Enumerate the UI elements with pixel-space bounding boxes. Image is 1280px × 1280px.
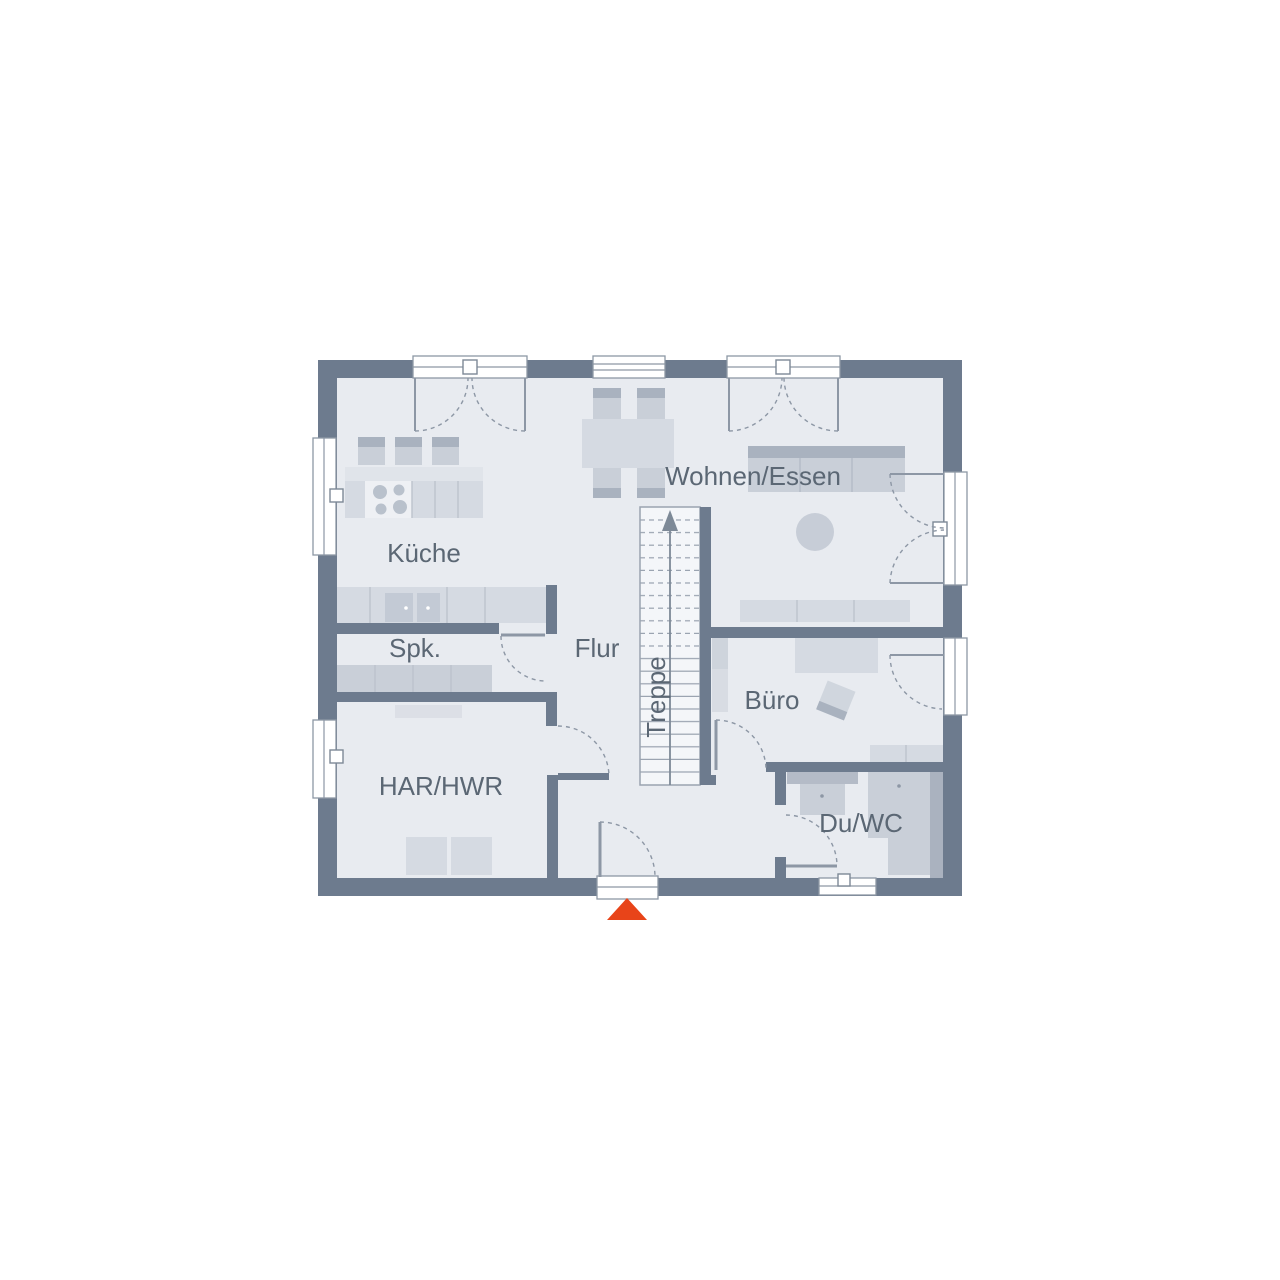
door-handle-icon [463, 360, 477, 374]
floor-plan-drawing: Küche Spk. Flur Wohnen/Essen Büro HAR/HW… [0, 0, 1280, 1280]
office-shelf [870, 745, 943, 762]
room-label-buero: Büro [745, 685, 800, 715]
desk [795, 633, 878, 673]
kitchen-counter [337, 587, 547, 623]
stairs [640, 507, 700, 785]
entrance-marker-triangle [607, 898, 647, 920]
room-label-du-wc: Du/WC [819, 808, 903, 838]
toilet [888, 838, 930, 875]
office-cabinet [712, 636, 728, 712]
room-label-kueche: Küche [387, 538, 461, 568]
floor-plan-page: Küche Spk. Flur Wohnen/Essen Büro HAR/HW… [0, 0, 1280, 1280]
sideboard [740, 600, 910, 622]
dining-table [582, 419, 674, 468]
kitchen-bar-stools [358, 437, 459, 465]
window-top-center [593, 356, 665, 378]
room-label-treppe: Treppe [641, 656, 671, 737]
room-label-flur: Flur [575, 633, 620, 663]
window-handle-icon [330, 489, 343, 502]
utility-shelf [395, 705, 462, 718]
window-handle-icon [838, 874, 850, 886]
room-label-wohnen-essen: Wohnen/Essen [665, 461, 841, 491]
room-label-spk: Spk. [389, 633, 441, 663]
coffee-table [796, 513, 834, 551]
kitchen-island [345, 467, 483, 518]
door-handle-icon [776, 360, 790, 374]
pantry-shelf [337, 665, 492, 692]
window-handle-icon [330, 750, 343, 763]
shower-wall-strip [930, 772, 943, 878]
sink-icon [385, 593, 413, 622]
room-label-har-hwr: HAR/HWR [379, 771, 503, 801]
door-handle-icon [933, 522, 947, 536]
